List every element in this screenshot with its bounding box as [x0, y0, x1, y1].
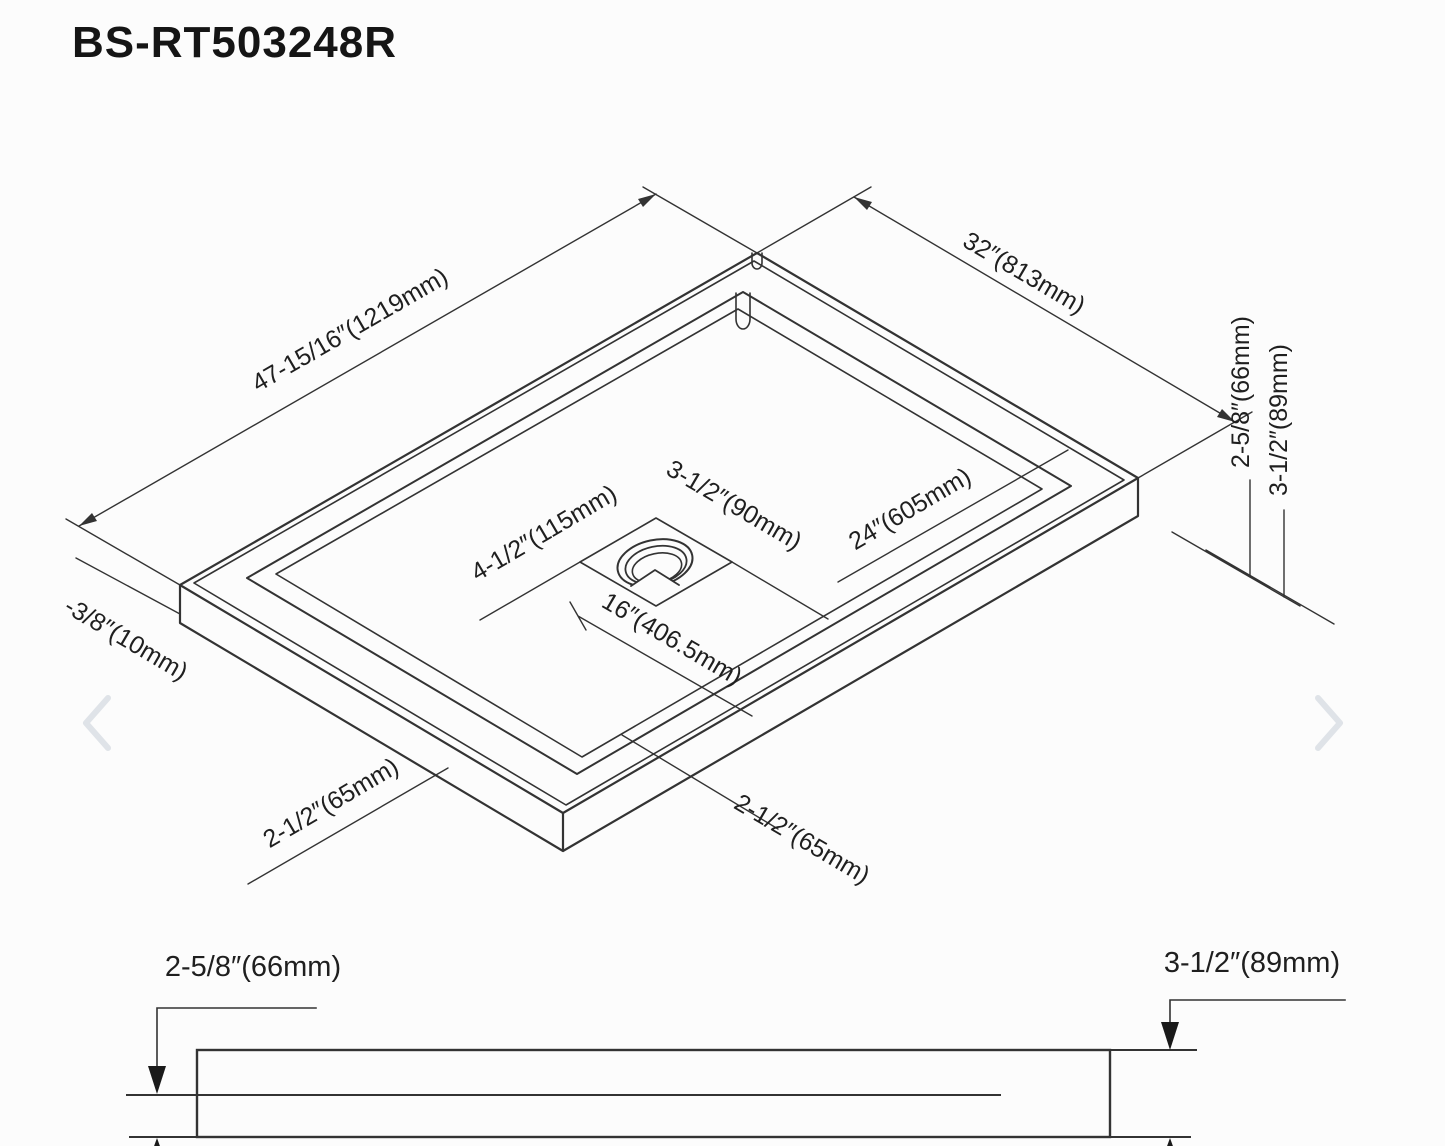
shower-base-technical-drawing: 47-15/16″(1219mm) 32″(813mm) 2-5/8″(66mm… [0, 0, 1445, 1146]
front-right-height-label: 2-1/2″(65mm) [729, 788, 874, 889]
width-extension-lines [757, 187, 1252, 478]
drain-square-label: 3-1/2″(90mm) [661, 454, 806, 555]
chevron-right-icon [1300, 686, 1356, 758]
height-reference-edges [1172, 532, 1334, 624]
profile-total-height-label: 3-1/2″(89mm) [1164, 947, 1340, 979]
carousel-previous-button[interactable] [70, 686, 126, 758]
profile-inner-depth-label: 2-5/8″(66mm) [165, 951, 341, 983]
drain-recess-label: 4-1/2″(115mm) [466, 479, 622, 586]
total-height-label: 3-1/2″(89mm) [1265, 344, 1293, 496]
carousel-next-button[interactable] [1300, 686, 1356, 758]
profile-view-linework [127, 1000, 1345, 1137]
flange-label: -3/8″(10mm) [59, 592, 192, 686]
profile-left-leader [157, 1008, 316, 1075]
drain-wedge-mask [631, 570, 679, 597]
width-dimension-line [854, 197, 1235, 422]
basin-corner-detail [736, 293, 750, 329]
drain-side-offset-label: 24″(605mm) [844, 462, 976, 555]
profile-arrowheads [148, 1022, 1179, 1146]
length-dimension-label: 47-15/16″(1219mm) [247, 263, 453, 398]
chevron-left-icon [70, 686, 126, 758]
dimension-arrowheads [79, 194, 1235, 526]
rim-depth-label: 2-5/8″(66mm) [1227, 316, 1255, 468]
drain-square-extension [732, 562, 828, 619]
width-dimension-label: 32″(813mm) [958, 226, 1090, 319]
profile-body [197, 1050, 1110, 1137]
basin-floor-edge [276, 309, 1042, 757]
product-drawing-slide: BS-RT503248R [0, 0, 1445, 1146]
front-left-height-label: 2-1/2″(65mm) [258, 752, 403, 853]
dimension-labels: 47-15/16″(1219mm) 32″(813mm) 2-5/8″(66mm… [59, 226, 1340, 983]
length-extension-lines [66, 187, 757, 585]
profile-right-leader [1170, 1000, 1345, 1032]
